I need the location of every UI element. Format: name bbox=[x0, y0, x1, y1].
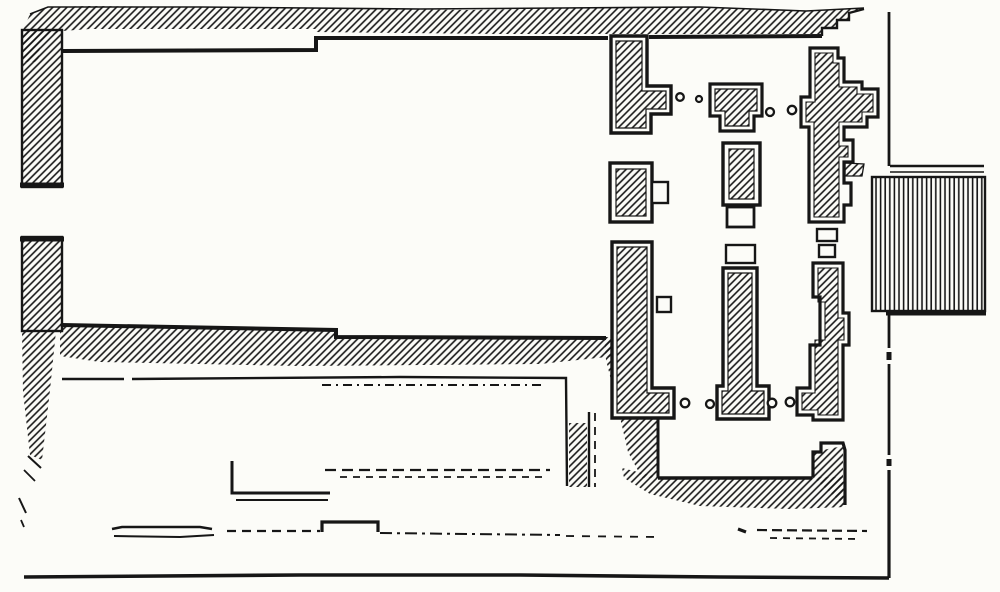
temple-plan-figure bbox=[0, 0, 1000, 592]
ruin-wall-sw-2 bbox=[114, 535, 214, 537]
plan-engraving-svg bbox=[0, 0, 1000, 592]
gate-dash-right-2 bbox=[566, 536, 660, 537]
sanctuary-cross-core bbox=[806, 53, 873, 217]
plan-shapes-layer bbox=[19, 6, 986, 578]
court-north-inner-line-east bbox=[649, 36, 822, 37]
socle-center-1 bbox=[727, 207, 754, 227]
socle-east-1 bbox=[817, 229, 837, 241]
sanctuary-broken-arm bbox=[845, 163, 864, 176]
gate-projection bbox=[322, 522, 378, 532]
west-wall-mid bbox=[22, 237, 62, 331]
column-base-south-1 bbox=[681, 399, 690, 408]
pier-west-square-tab bbox=[652, 182, 668, 203]
se-dash-row-2 bbox=[770, 538, 860, 539]
column-base-south-3 bbox=[768, 399, 777, 408]
column-base-north-3 bbox=[766, 108, 774, 116]
north-wall-band bbox=[22, 6, 864, 62]
se-dash-blob bbox=[738, 529, 746, 532]
socle-center-2 bbox=[726, 245, 755, 263]
west-wall-ruin-mark-2 bbox=[24, 470, 35, 481]
stair-ramp bbox=[872, 177, 985, 311]
ruin-corner bbox=[232, 461, 330, 493]
pylon-remnant-hatch bbox=[569, 423, 587, 487]
west-wall-lower-taper bbox=[22, 331, 56, 460]
pier-center-upper-core bbox=[729, 149, 754, 199]
column-base-north-4 bbox=[788, 106, 796, 114]
court-north-inner-line-west bbox=[63, 38, 608, 51]
column-base-north-2 bbox=[696, 96, 702, 102]
gate-dash-right bbox=[380, 533, 560, 535]
south-boundary-line bbox=[24, 575, 889, 578]
west-wall-ruin-mark-4 bbox=[21, 520, 24, 527]
socle-east-2 bbox=[819, 245, 835, 257]
pier-east-lower-core bbox=[802, 268, 844, 415]
column-base-south-4 bbox=[786, 398, 795, 407]
se-dash-row-1 bbox=[757, 530, 867, 531]
west-row-socle bbox=[657, 297, 671, 312]
pier-west-square-core bbox=[616, 169, 646, 216]
column-base-north-1 bbox=[676, 93, 684, 101]
ruin-wall-sw-1 bbox=[112, 527, 212, 529]
column-base-south-2 bbox=[706, 400, 714, 408]
west-wall-upper bbox=[22, 30, 62, 187]
west-wall-ruin-mark-3 bbox=[19, 498, 26, 513]
